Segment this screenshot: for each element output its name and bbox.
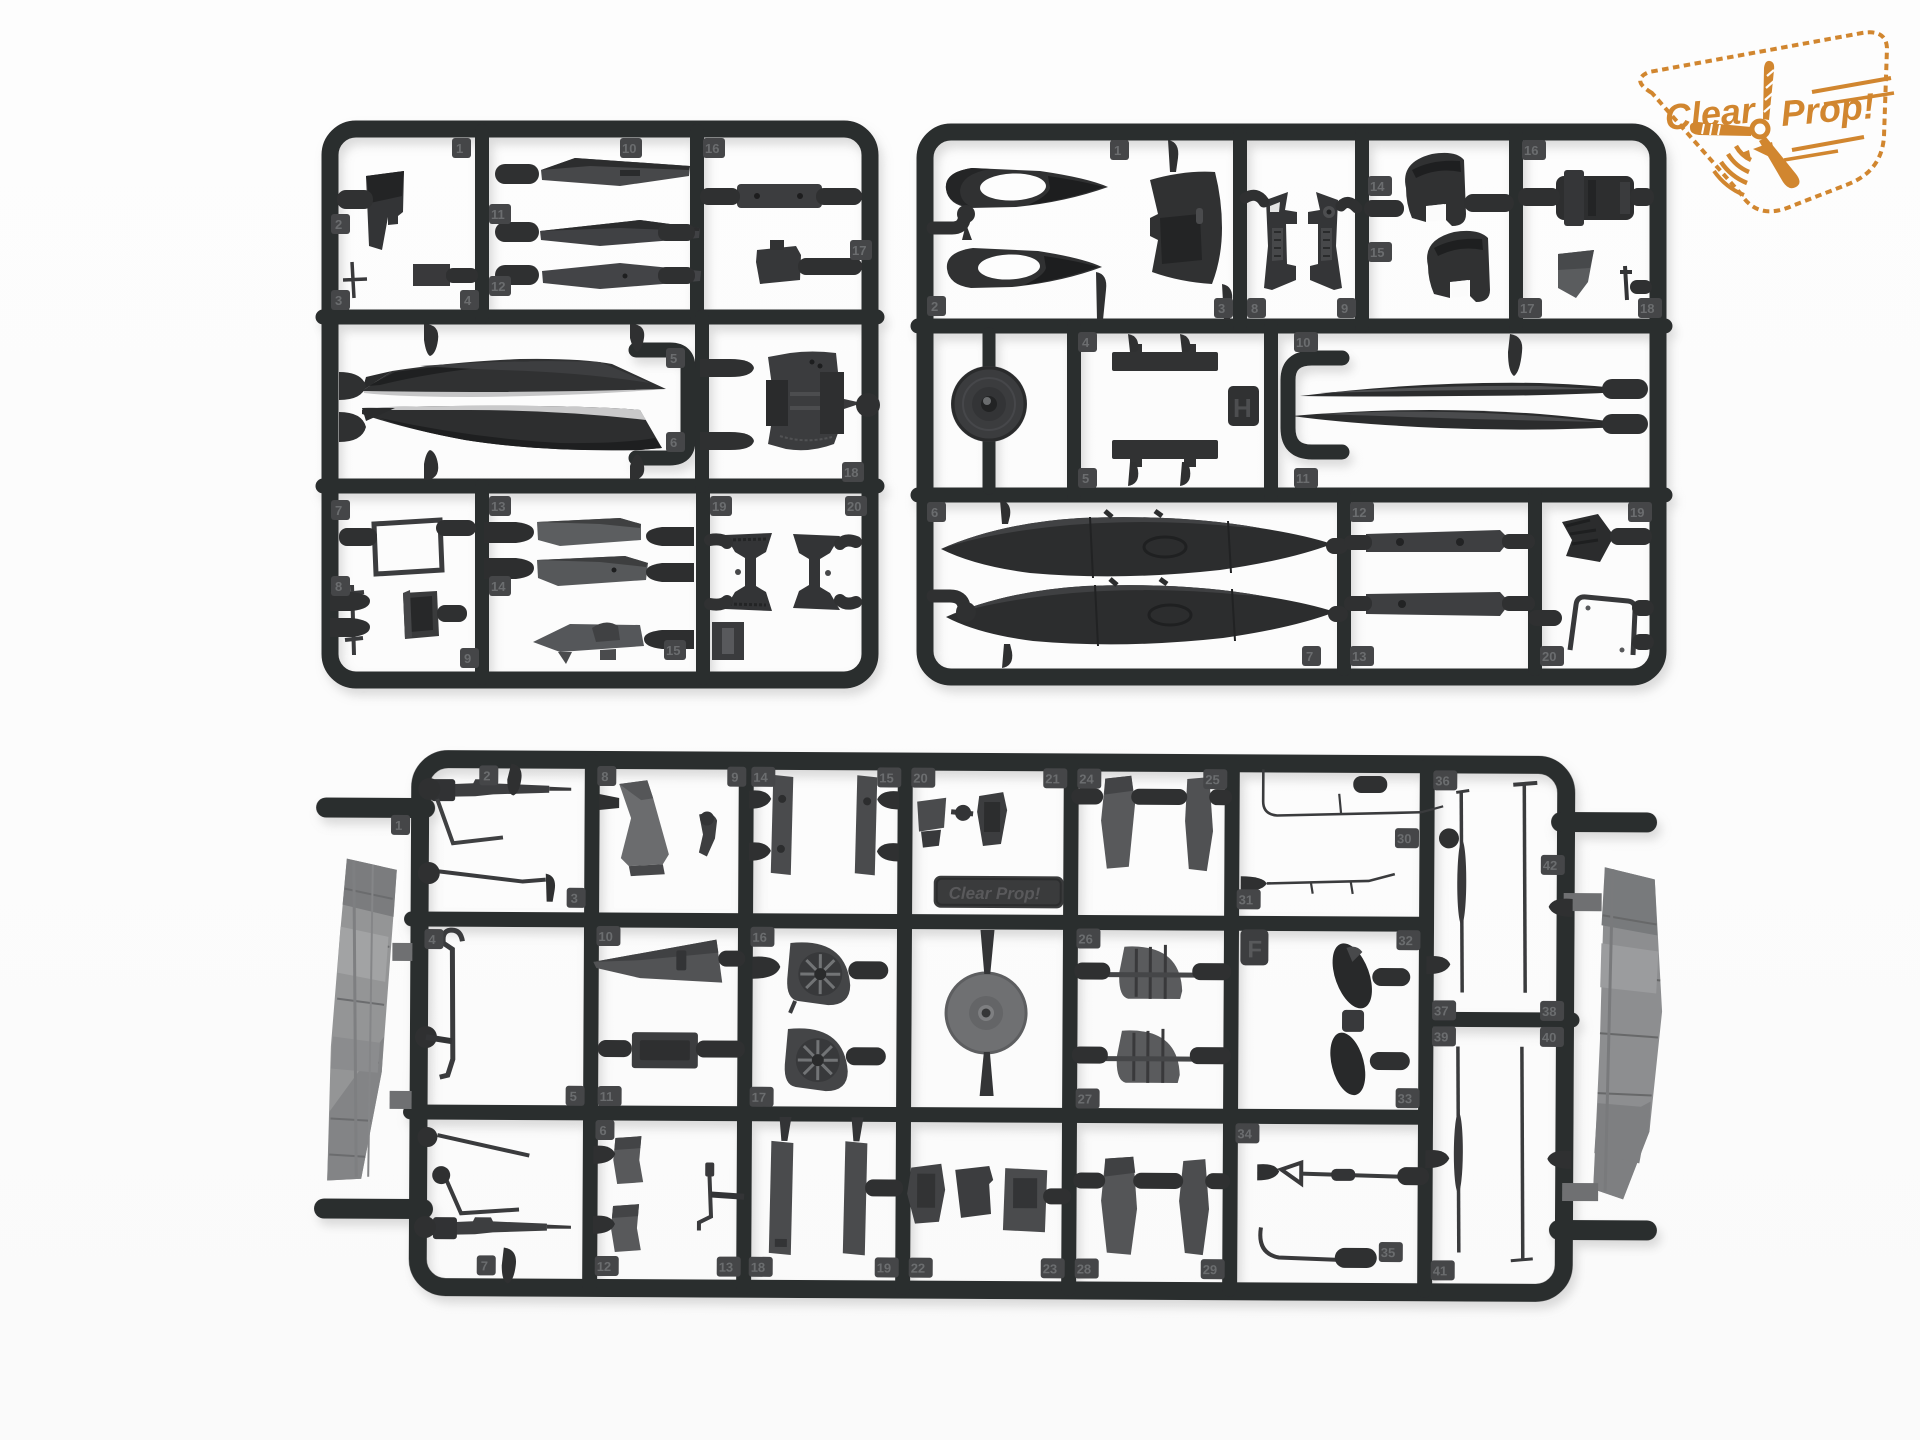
svg-text:40: 40 bbox=[1542, 1030, 1557, 1045]
svg-text:13: 13 bbox=[1352, 649, 1366, 664]
svg-text:34: 34 bbox=[1237, 1126, 1252, 1141]
svg-text:19: 19 bbox=[877, 1260, 892, 1275]
svg-text:9: 9 bbox=[1341, 301, 1348, 316]
svg-text:17: 17 bbox=[852, 243, 866, 258]
svg-text:F: F bbox=[1247, 936, 1262, 963]
svg-text:14: 14 bbox=[1370, 179, 1385, 194]
svg-text:12: 12 bbox=[1352, 505, 1366, 520]
svg-text:1: 1 bbox=[395, 818, 402, 833]
svg-text:Clear Prop!: Clear Prop! bbox=[949, 884, 1041, 903]
svg-text:2: 2 bbox=[931, 299, 938, 314]
svg-text:12: 12 bbox=[597, 1259, 612, 1274]
svg-text:18: 18 bbox=[751, 1260, 766, 1275]
svg-text:10: 10 bbox=[1296, 335, 1310, 350]
svg-text:32: 32 bbox=[1398, 933, 1413, 948]
svg-text:14: 14 bbox=[491, 579, 506, 594]
svg-text:22: 22 bbox=[911, 1261, 926, 1276]
svg-text:26: 26 bbox=[1078, 931, 1093, 946]
svg-text:13: 13 bbox=[719, 1260, 734, 1275]
svg-text:19: 19 bbox=[1630, 505, 1644, 520]
svg-text:H: H bbox=[1233, 393, 1252, 423]
svg-text:37: 37 bbox=[1434, 1003, 1449, 1018]
svg-text:18: 18 bbox=[1640, 301, 1654, 316]
svg-text:11: 11 bbox=[491, 207, 505, 222]
svg-text:36: 36 bbox=[1435, 773, 1450, 788]
svg-text:24: 24 bbox=[1079, 771, 1094, 786]
svg-text:9: 9 bbox=[464, 651, 471, 666]
svg-text:17: 17 bbox=[1520, 301, 1534, 316]
svg-text:4: 4 bbox=[428, 932, 436, 947]
svg-text:3: 3 bbox=[335, 293, 342, 308]
svg-text:15: 15 bbox=[879, 770, 894, 785]
svg-text:29: 29 bbox=[1203, 1262, 1218, 1277]
svg-text:6: 6 bbox=[931, 505, 938, 520]
svg-text:14: 14 bbox=[753, 770, 768, 785]
svg-text:5: 5 bbox=[1082, 471, 1089, 486]
svg-text:41: 41 bbox=[1433, 1263, 1448, 1278]
svg-text:6: 6 bbox=[599, 1123, 606, 1138]
svg-text:19: 19 bbox=[712, 499, 726, 514]
svg-text:4: 4 bbox=[464, 293, 472, 308]
svg-text:38: 38 bbox=[1542, 1004, 1557, 1019]
svg-text:21: 21 bbox=[1045, 771, 1060, 786]
svg-text:23: 23 bbox=[1043, 1261, 1058, 1276]
svg-text:7: 7 bbox=[481, 1258, 488, 1273]
svg-text:2: 2 bbox=[483, 768, 490, 783]
svg-text:10: 10 bbox=[598, 929, 613, 944]
svg-text:25: 25 bbox=[1205, 772, 1220, 787]
svg-text:7: 7 bbox=[335, 503, 342, 518]
svg-text:30: 30 bbox=[1397, 831, 1412, 846]
svg-text:16: 16 bbox=[752, 930, 767, 945]
svg-text:11: 11 bbox=[600, 1089, 614, 1104]
svg-text:8: 8 bbox=[335, 579, 342, 594]
svg-text:8: 8 bbox=[601, 769, 608, 784]
svg-text:35: 35 bbox=[1381, 1245, 1396, 1260]
svg-text:15: 15 bbox=[1370, 245, 1384, 260]
svg-text:31: 31 bbox=[1239, 892, 1254, 907]
svg-text:39: 39 bbox=[1434, 1029, 1449, 1044]
svg-text:20: 20 bbox=[847, 499, 861, 514]
svg-text:20: 20 bbox=[1542, 649, 1556, 664]
svg-text:3: 3 bbox=[1218, 301, 1225, 316]
svg-text:42: 42 bbox=[1543, 858, 1558, 873]
svg-text:7: 7 bbox=[1306, 649, 1313, 664]
svg-text:28: 28 bbox=[1077, 1261, 1092, 1276]
svg-text:3: 3 bbox=[571, 891, 578, 906]
svg-text:12: 12 bbox=[491, 279, 505, 294]
svg-text:Prop!: Prop! bbox=[1779, 85, 1876, 134]
svg-text:15: 15 bbox=[666, 643, 680, 658]
svg-text:17: 17 bbox=[752, 1090, 767, 1105]
svg-text:11: 11 bbox=[1296, 471, 1310, 486]
svg-text:2: 2 bbox=[335, 217, 342, 232]
svg-text:16: 16 bbox=[705, 141, 719, 156]
svg-text:27: 27 bbox=[1078, 1091, 1093, 1106]
svg-text:9: 9 bbox=[731, 770, 738, 785]
svg-text:18: 18 bbox=[844, 465, 858, 480]
svg-text:10: 10 bbox=[622, 141, 636, 156]
svg-text:20: 20 bbox=[913, 771, 928, 786]
svg-text:6: 6 bbox=[670, 435, 677, 450]
svg-text:1: 1 bbox=[456, 141, 463, 156]
svg-text:5: 5 bbox=[570, 1089, 577, 1104]
svg-text:5: 5 bbox=[670, 351, 677, 366]
svg-text:16: 16 bbox=[1524, 143, 1538, 158]
svg-text:1: 1 bbox=[1114, 143, 1121, 158]
svg-text:13: 13 bbox=[491, 499, 505, 514]
svg-text:8: 8 bbox=[1251, 301, 1258, 316]
svg-text:4: 4 bbox=[1082, 335, 1090, 350]
svg-text:33: 33 bbox=[1398, 1091, 1413, 1106]
